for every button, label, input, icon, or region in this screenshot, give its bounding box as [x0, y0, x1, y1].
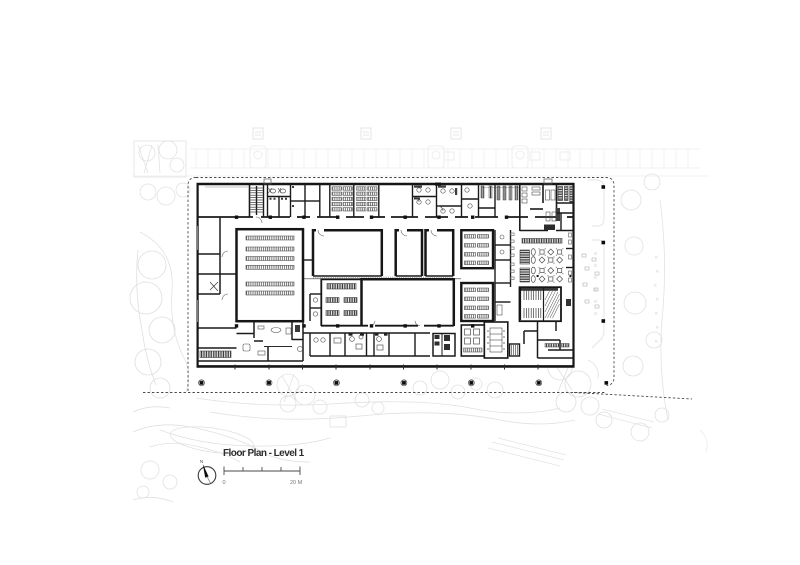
svg-text:N: N: [200, 459, 203, 464]
svg-text:0: 0: [223, 480, 226, 486]
svg-text:20 M: 20 M: [290, 480, 303, 486]
svg-text:Floor Plan - Level 1: Floor Plan - Level 1: [223, 448, 305, 459]
